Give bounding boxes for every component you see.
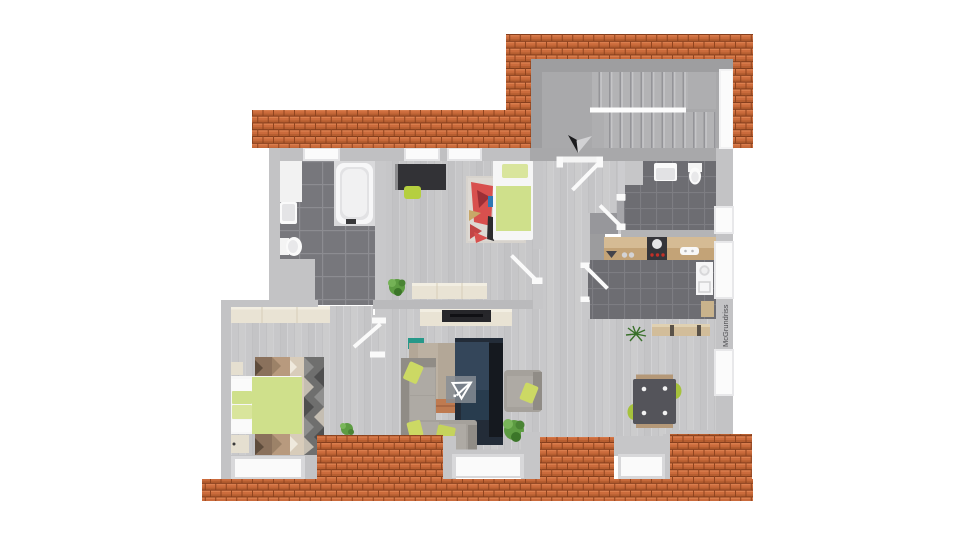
svg-text:McGrundriss: McGrundriss [721,304,730,347]
